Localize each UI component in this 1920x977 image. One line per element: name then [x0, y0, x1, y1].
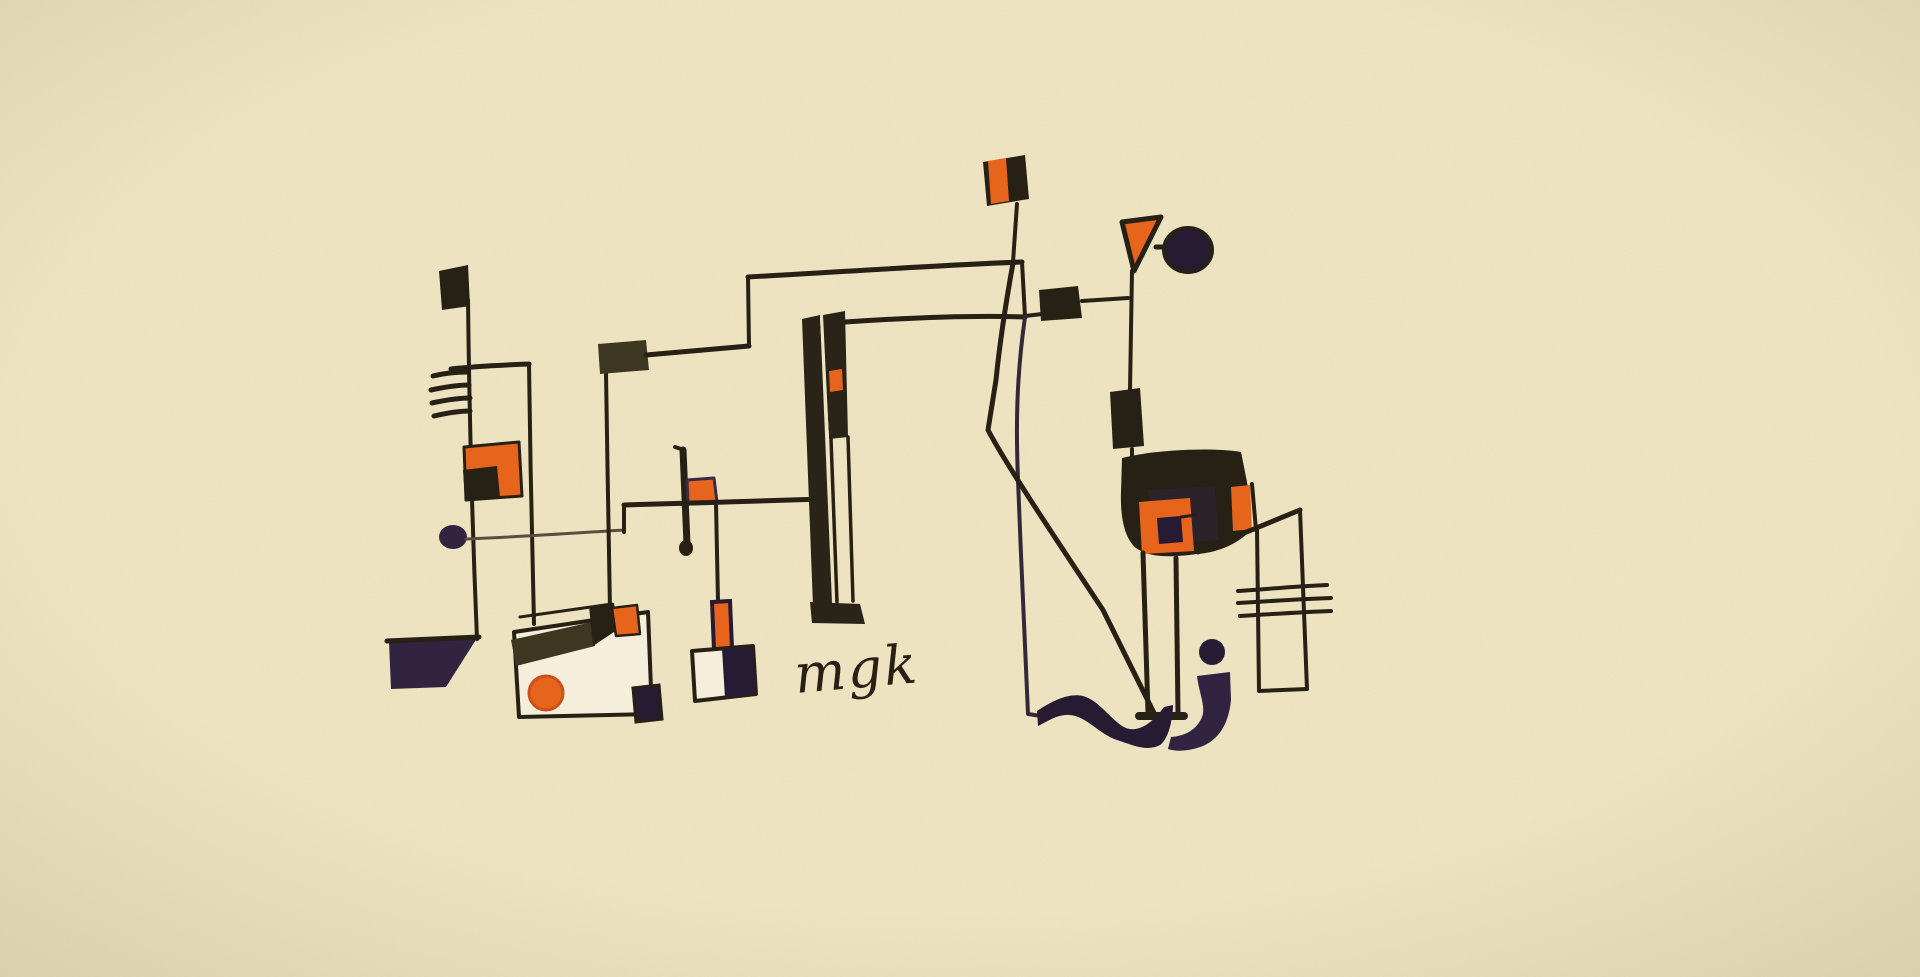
dark-purple-circle: [1164, 228, 1212, 272]
vertical-black-rect: [1110, 388, 1144, 449]
purple-dot-right: [1199, 639, 1225, 665]
junction-right-stub: [1025, 314, 1042, 316]
black-scribble-corner: [463, 466, 500, 500]
window-rect-dark-half: [722, 646, 756, 698]
thick-post-blob: [679, 540, 693, 556]
blob-island-link: [1181, 515, 1196, 517]
left-black-flag: [439, 265, 470, 310]
black-square-junction: [1039, 286, 1082, 321]
purple-dot-left: [439, 525, 467, 549]
top-flag-orange-part: [988, 158, 1009, 204]
abstract-ink-drawing: mgk: [0, 0, 1920, 977]
orange-rect-hanging: [712, 601, 732, 650]
artwork-canvas: mgk: [0, 0, 1920, 977]
card-orange-patch: [612, 605, 640, 636]
step-up-segment: [748, 277, 749, 346]
blob-black-island: [1157, 516, 1183, 544]
drop-vertical-mid: [716, 503, 718, 602]
blob-right-leg: [1176, 558, 1178, 713]
orange-dot: [529, 676, 563, 710]
paper-vignette: [0, 0, 1920, 977]
triangle-pole: [1130, 271, 1132, 390]
small-black-rect-mid: [598, 340, 649, 374]
bar-foot: [810, 602, 865, 624]
orange-square-center: [687, 478, 717, 503]
orange-square-with-scribble: [463, 442, 522, 500]
blob-orange-stripe: [1231, 485, 1252, 531]
artist-signature: mgk: [792, 632, 922, 706]
bar-orange-patch: [829, 369, 843, 392]
card-black-square: [633, 685, 662, 722]
